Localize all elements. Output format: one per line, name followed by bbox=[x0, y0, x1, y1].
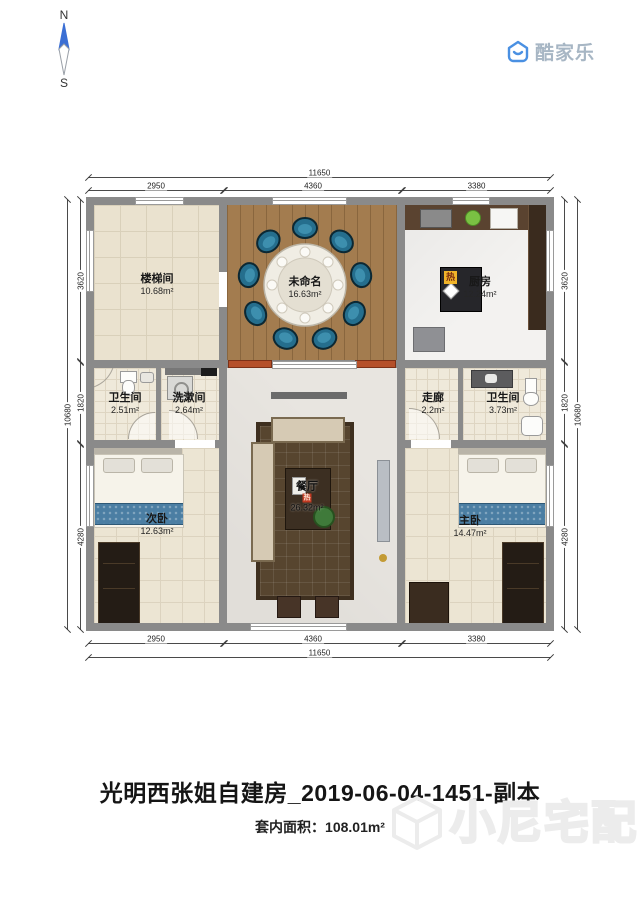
area-value: 108.01m² bbox=[325, 819, 385, 835]
window bbox=[452, 197, 490, 205]
area-label: 套内面积： bbox=[255, 819, 325, 835]
standing-mirror bbox=[377, 460, 390, 542]
door-opening bbox=[219, 272, 227, 307]
hot-water-badge: 热 bbox=[303, 494, 312, 503]
window bbox=[86, 230, 94, 292]
room-label-bathroom-right: 卫生间 3.73m² bbox=[487, 391, 520, 417]
sliding-door-panel bbox=[228, 360, 272, 368]
dimension-bottom-total: 11650 bbox=[88, 657, 551, 658]
room-label-unnamed: 未命名 16.63m² bbox=[288, 275, 321, 301]
wardrobe bbox=[98, 542, 140, 623]
pillow-icon bbox=[505, 458, 537, 473]
dimension-top-seg1: 2950 bbox=[88, 190, 224, 191]
plan-area-summary: 套内面积：108.01m² bbox=[0, 817, 640, 837]
dimension-top-seg2: 4360 bbox=[224, 190, 402, 191]
dimension-left-seg3: 4280 bbox=[80, 444, 81, 630]
window bbox=[272, 197, 347, 205]
door-opening bbox=[411, 440, 451, 448]
room-label-bathroom-left: 卫生间 2.51m² bbox=[109, 391, 142, 417]
sink-icon bbox=[465, 210, 481, 226]
sofa-top bbox=[271, 417, 345, 443]
shower-arc bbox=[94, 368, 115, 389]
room-label-second-bedroom: 次卧 12.63m² bbox=[140, 512, 173, 538]
dimension-top-seg3: 3380 bbox=[402, 190, 551, 191]
dimension-left-total: 10680 bbox=[67, 199, 68, 630]
kujiale-logo: 酷家乐 bbox=[506, 38, 595, 65]
room-label-washroom: 洗漱间 2.64m² bbox=[173, 391, 206, 417]
dimension-top-total: 11650 bbox=[88, 177, 551, 178]
vanity-sink-icon bbox=[485, 374, 497, 383]
floor-plan: 楼梯间 10.68m² 未命名 16.63m² 热 厨房 12.24m² 卫生间… bbox=[86, 197, 554, 631]
sofa-left bbox=[251, 442, 275, 562]
room-label-kitchen: 厨房 12.24m² bbox=[463, 275, 496, 301]
fridge-icon bbox=[490, 208, 518, 229]
stove-icon bbox=[420, 209, 452, 228]
compass-south-label: S bbox=[48, 76, 80, 90]
kitchen-stool bbox=[413, 327, 445, 352]
toilet-icon bbox=[523, 392, 539, 406]
kitchen-tall-cabinet bbox=[528, 205, 546, 330]
compass: N S bbox=[48, 8, 80, 100]
kujiale-brand-text: 酷家乐 bbox=[535, 38, 595, 65]
dimension-left-seg2: 1820 bbox=[80, 362, 81, 444]
sliding-door-opening bbox=[272, 361, 357, 369]
vase-icon bbox=[379, 554, 387, 562]
dimension-right-seg2: 1820 bbox=[564, 362, 565, 444]
room-label-dining-living: 餐厅 热 26.32m² bbox=[290, 480, 323, 515]
dimension-right-total: 10680 bbox=[577, 199, 578, 630]
desk bbox=[409, 582, 449, 623]
dimension-right-seg1: 3620 bbox=[564, 199, 565, 362]
pillow-icon bbox=[467, 458, 499, 473]
stool-right bbox=[315, 596, 339, 618]
dimension-bottom-seg1: 2950 bbox=[88, 643, 224, 644]
dimension-bottom-seg2: 4360 bbox=[224, 643, 402, 644]
wardrobe bbox=[502, 542, 544, 623]
hot-water-badge: 热 bbox=[444, 271, 457, 284]
washroom-shelf bbox=[165, 368, 201, 375]
dimension-bottom-seg3: 3380 bbox=[402, 643, 551, 644]
stool-left bbox=[277, 596, 301, 618]
sliding-door-panel bbox=[355, 360, 396, 368]
window bbox=[250, 623, 347, 631]
dimension-right-seg3: 4280 bbox=[564, 444, 565, 630]
window bbox=[86, 465, 94, 527]
compass-needle-icon bbox=[56, 22, 72, 76]
tv-cabinet bbox=[271, 392, 347, 399]
room-label-staircase: 楼梯间 10.68m² bbox=[140, 272, 173, 298]
bath-fixture bbox=[521, 416, 543, 436]
cabinet-dark bbox=[201, 368, 217, 376]
pillow-icon bbox=[141, 458, 173, 473]
window bbox=[546, 230, 554, 292]
room-label-master-bedroom: 主卧 14.47m² bbox=[453, 514, 486, 540]
room-label-corridor: 走廊 2.2m² bbox=[421, 391, 444, 417]
vanity-counter bbox=[471, 370, 513, 388]
kujiale-shield-icon bbox=[506, 40, 530, 64]
pillow-icon bbox=[103, 458, 135, 473]
washbasin-icon bbox=[140, 372, 154, 383]
door-opening bbox=[175, 440, 215, 448]
window bbox=[546, 465, 554, 527]
dimension-left-seg1: 3620 bbox=[80, 199, 81, 362]
floor-plan-page: N S 酷家乐 11650 2950 4360 3380 2950 4360 3… bbox=[0, 0, 640, 905]
window bbox=[135, 197, 184, 205]
compass-north-label: N bbox=[48, 8, 80, 22]
